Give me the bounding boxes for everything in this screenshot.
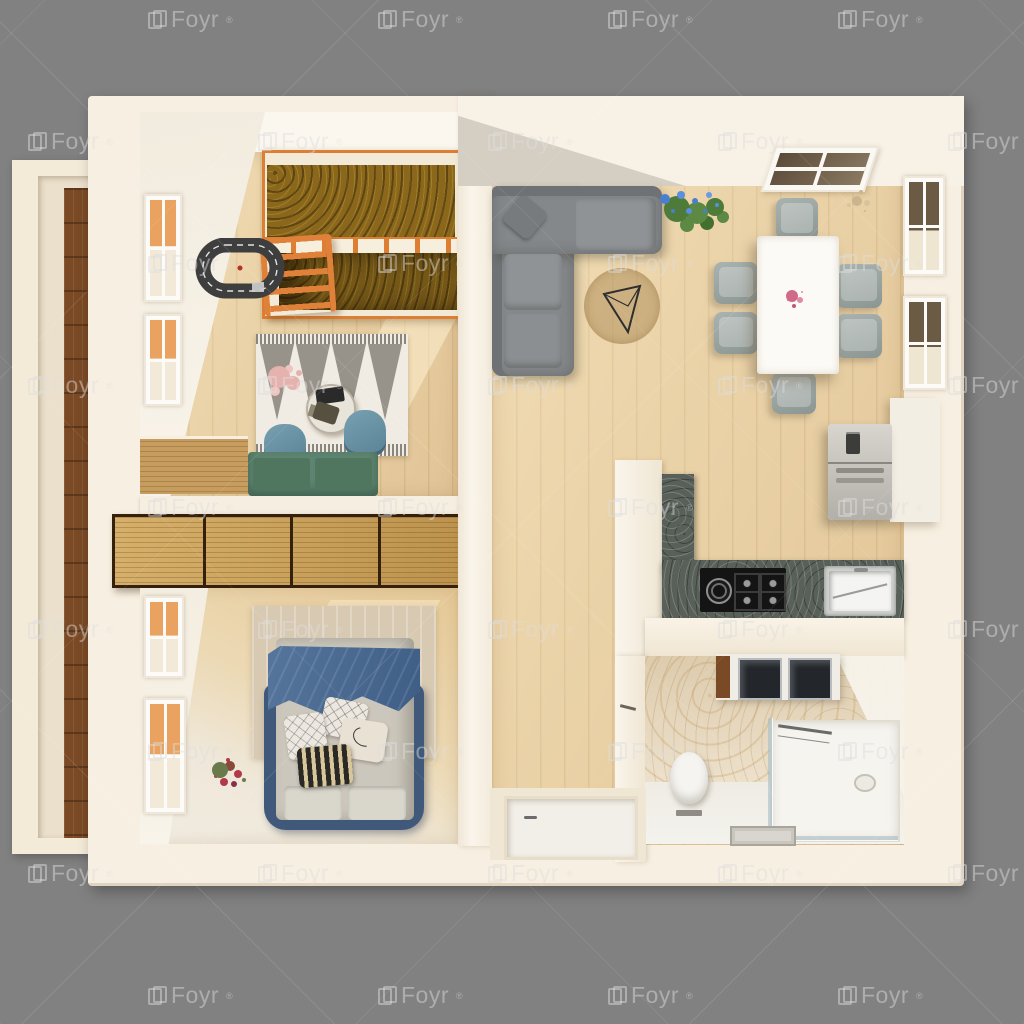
rug-band-top: [256, 334, 408, 344]
watermark-text: Foyr: [401, 982, 449, 1009]
pillow-striped: [296, 744, 353, 789]
watermark-registered-mark: ®: [916, 15, 923, 25]
watermark-text: Foyr: [401, 6, 449, 33]
sofa-cushion: [576, 198, 656, 250]
plush-toy: [268, 366, 290, 388]
wall-decor-dried-plant: [852, 196, 862, 206]
dryer-door: [788, 658, 832, 700]
watermark-text: Foyr: [171, 6, 219, 33]
watermark-text: Foyr: [971, 860, 1019, 887]
kitchen-sink: [824, 566, 896, 616]
entry-floor: [504, 796, 638, 860]
kitchen-counter-vertical: [662, 474, 694, 574]
top-wall-shadow-wedge: [458, 96, 686, 186]
watermark-logo-icon: [148, 986, 165, 1005]
washer-door: [738, 658, 782, 700]
toilet: [670, 752, 708, 804]
watermark-text: Foyr: [971, 372, 1019, 399]
wire-decor: [592, 276, 652, 338]
wall-left-rooms-corridor: [458, 96, 492, 846]
rug-triangle: [368, 344, 402, 420]
dining-table: [757, 236, 839, 374]
wardrobe: [112, 514, 468, 588]
watermark: Foyr®: [148, 982, 233, 1009]
fridge-ice-dispenser: [846, 432, 860, 454]
wall-kitchen-bathroom: [645, 618, 904, 656]
kids-bench-green: [248, 452, 378, 496]
shower-glass-left: [768, 718, 772, 840]
watermark-logo-icon: [378, 986, 395, 1005]
wardrobe-divider: [203, 517, 206, 585]
bathroom-floor-drain: [730, 826, 796, 846]
bench-cushion: [253, 458, 310, 490]
table-flowers-pink: [786, 290, 798, 302]
window-panes: [150, 200, 176, 296]
toilet-flush-plate: [676, 810, 702, 816]
watermark: Foyr®: [838, 6, 923, 33]
watermark-logo-icon: [378, 10, 395, 29]
dining-chair-right-2: [836, 314, 882, 358]
watermark: Foyr®: [608, 6, 693, 33]
balcony-deck-wood: [64, 188, 90, 838]
watermark-logo-icon: [608, 986, 625, 1005]
dining-chair-right-1: [836, 264, 882, 308]
watermark: Foyr®: [378, 982, 463, 1009]
window-panes: [150, 320, 176, 400]
face-line: [349, 723, 377, 750]
entry-door-handle: [524, 816, 537, 819]
shower-drain: [854, 774, 876, 792]
watermark-registered-mark: ®: [456, 991, 463, 1001]
watermark: Foyr®: [148, 6, 233, 33]
bed-seat-cushion: [284, 786, 342, 820]
bedroom-window-2: [144, 698, 186, 814]
fridge-side-cabinet: [890, 398, 940, 522]
kids-room-window-2: [144, 314, 182, 406]
watermark-logo-icon: [608, 10, 625, 29]
burner-grate: [734, 573, 760, 611]
watermark-registered-mark: ®: [686, 991, 693, 1001]
watermark-text: Foyr: [971, 128, 1019, 155]
watermark-logo-icon: [838, 986, 855, 1005]
watermark-text: Foyr: [631, 6, 679, 33]
top-wall-band: [458, 96, 964, 186]
watermark-logo-icon: [28, 132, 45, 151]
burner-grate: [760, 573, 786, 611]
fridge: [828, 424, 892, 520]
dining-chair-bottom: [772, 372, 816, 414]
watermark: Foyr®: [378, 6, 463, 33]
watermark-registered-mark: ®: [456, 15, 463, 25]
watermark-logo-icon: [28, 864, 45, 883]
watermark: Foyr®: [608, 982, 693, 1009]
flower-vase-red: [212, 762, 228, 778]
cooktop: [700, 568, 786, 612]
fridge-handle: [836, 468, 884, 473]
skylight-window: [761, 146, 880, 192]
sofa-cushion: [504, 314, 562, 368]
window-panes: [909, 182, 939, 270]
watermark-logo-icon: [148, 10, 165, 29]
watermark-text: Foyr: [861, 982, 909, 1009]
dining-chair-left-1: [714, 262, 758, 304]
watermark-registered-mark: ®: [686, 15, 693, 25]
faucet: [854, 568, 868, 572]
fridge-door-seam: [828, 462, 892, 464]
bedroom-window-1: [144, 596, 184, 678]
watermark: Foyr®: [838, 982, 923, 1009]
washer-wood-side: [716, 656, 730, 698]
watermark-registered-mark: ®: [916, 991, 923, 1001]
window-panes: [150, 602, 178, 672]
wall-kids-bedroom: [140, 496, 458, 514]
washer-dryer-unit: [716, 654, 840, 700]
wardrobe-divider: [290, 517, 293, 585]
dining-chair-left-2: [714, 312, 758, 354]
kids-cabinet-wood: [140, 436, 248, 494]
toy-race-track: [194, 238, 286, 300]
skylight-panes: [770, 153, 870, 185]
bed-seat-cushion: [348, 786, 406, 820]
kids-room-window-1: [144, 194, 182, 302]
watermark-text: Foyr: [971, 616, 1019, 643]
floorplan-render: Foyr®Foyr®Foyr®Foyr®Foyr®Foyr®Foyr®Foyr®…: [0, 0, 1024, 1024]
watermark-registered-mark: ®: [226, 15, 233, 25]
watermark-text: Foyr: [171, 982, 219, 1009]
sofa-cushion: [504, 254, 562, 310]
dining-window-right-2: [903, 296, 947, 390]
bunk-bed-top-mattress: [267, 165, 455, 237]
watermark-registered-mark: ®: [226, 991, 233, 1001]
kids-chair-right: [344, 410, 386, 456]
watermark-text: Foyr: [631, 982, 679, 1009]
burner-round: [706, 578, 732, 604]
window-panes: [909, 302, 941, 384]
bench-cushion: [315, 458, 372, 490]
watermark-text: Foyr: [861, 6, 909, 33]
watermark-logo-icon: [838, 10, 855, 29]
dining-window-right-1: [903, 176, 945, 276]
plant-blue-blooms: [660, 194, 670, 204]
wardrobe-divider: [378, 517, 381, 585]
shower-tray: [770, 720, 900, 842]
window-panes: [150, 704, 180, 808]
dining-chair-top: [776, 198, 818, 240]
